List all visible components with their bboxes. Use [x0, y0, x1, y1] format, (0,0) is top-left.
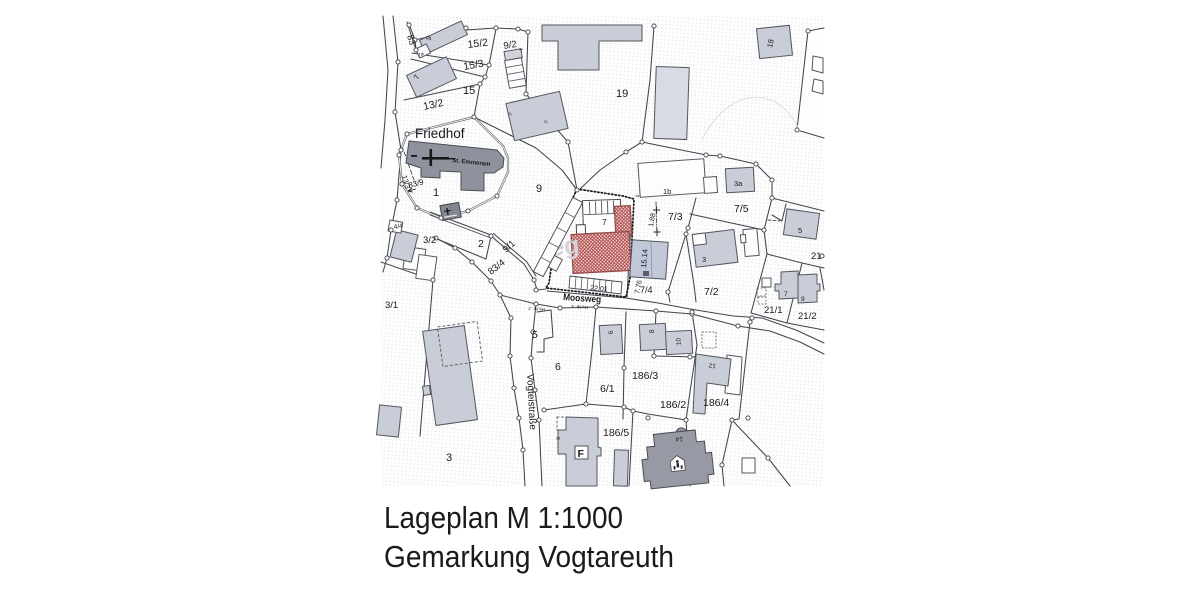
svg-text:5: 5 — [798, 226, 802, 235]
svg-text:9/2: 9/2 — [503, 39, 518, 52]
svg-text:5: 5 — [532, 329, 538, 341]
svg-text:3a: 3a — [734, 179, 743, 188]
svg-text:9: 9 — [536, 183, 542, 195]
svg-text:15.14: 15.14 — [639, 249, 650, 268]
svg-text:7: 7 — [784, 291, 788, 298]
svg-text:21: 21 — [811, 251, 822, 262]
svg-text:7/3: 7/3 — [668, 211, 683, 223]
svg-text:19: 19 — [616, 88, 628, 100]
svg-text:3: 3 — [446, 452, 452, 464]
svg-text:186/5: 186/5 — [603, 427, 629, 439]
svg-text:21/2: 21/2 — [798, 311, 817, 322]
svg-text:6/1: 6/1 — [600, 383, 615, 395]
svg-text:10: 10 — [675, 337, 683, 345]
svg-text:F: F — [578, 448, 585, 460]
svg-text:4/4: 4/4 — [393, 223, 403, 231]
svg-text:+: + — [519, 47, 523, 54]
svg-text:7/2: 7/2 — [704, 286, 719, 298]
svg-text:Lageplan M 1:1000: Lageplan M 1:1000 — [384, 500, 623, 535]
svg-text:9: 9 — [801, 296, 805, 303]
svg-text:Gemarkung Vogtareuth: Gemarkung Vogtareuth — [384, 539, 674, 574]
svg-text:21/1: 21/1 — [764, 305, 783, 316]
svg-text:186/4: 186/4 — [703, 397, 729, 409]
svg-text:15/2: 15/2 — [467, 37, 489, 51]
svg-text:Friedhof: Friedhof — [415, 126, 465, 141]
svg-text:186/3: 186/3 — [632, 370, 658, 382]
svg-text:1b: 1b — [663, 187, 671, 196]
svg-text:15: 15 — [463, 85, 475, 97]
svg-text:3: 3 — [702, 255, 706, 264]
svg-text:12: 12 — [708, 362, 716, 369]
svg-text:3/1: 3/1 — [385, 300, 398, 311]
svg-text:3/2: 3/2 — [423, 235, 436, 246]
svg-text:7: 7 — [602, 217, 607, 227]
svg-text:9: 9 — [556, 437, 562, 441]
svg-text:6: 6 — [555, 361, 561, 373]
svg-text:7/5: 7/5 — [734, 203, 749, 215]
svg-text:1: 1 — [433, 187, 439, 199]
svg-text:14: 14 — [675, 435, 683, 442]
svg-text:2: 2 — [478, 238, 484, 250]
svg-text:186/2: 186/2 — [660, 399, 686, 411]
